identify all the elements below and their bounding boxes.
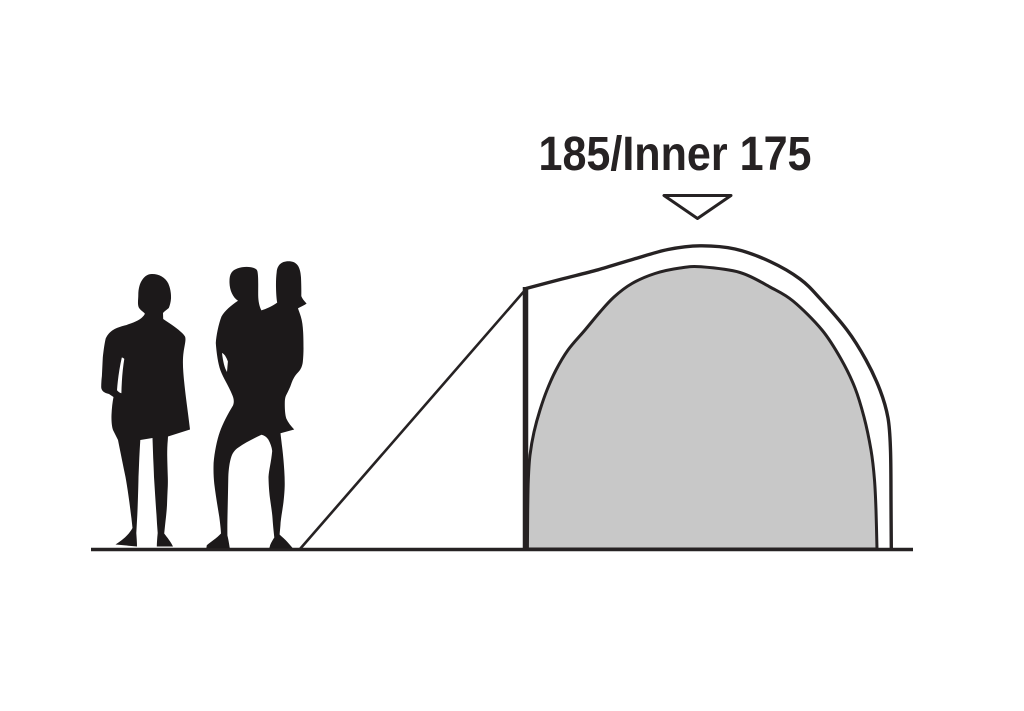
svg-text:185/Inner 175: 185/Inner 175 [539,128,812,181]
